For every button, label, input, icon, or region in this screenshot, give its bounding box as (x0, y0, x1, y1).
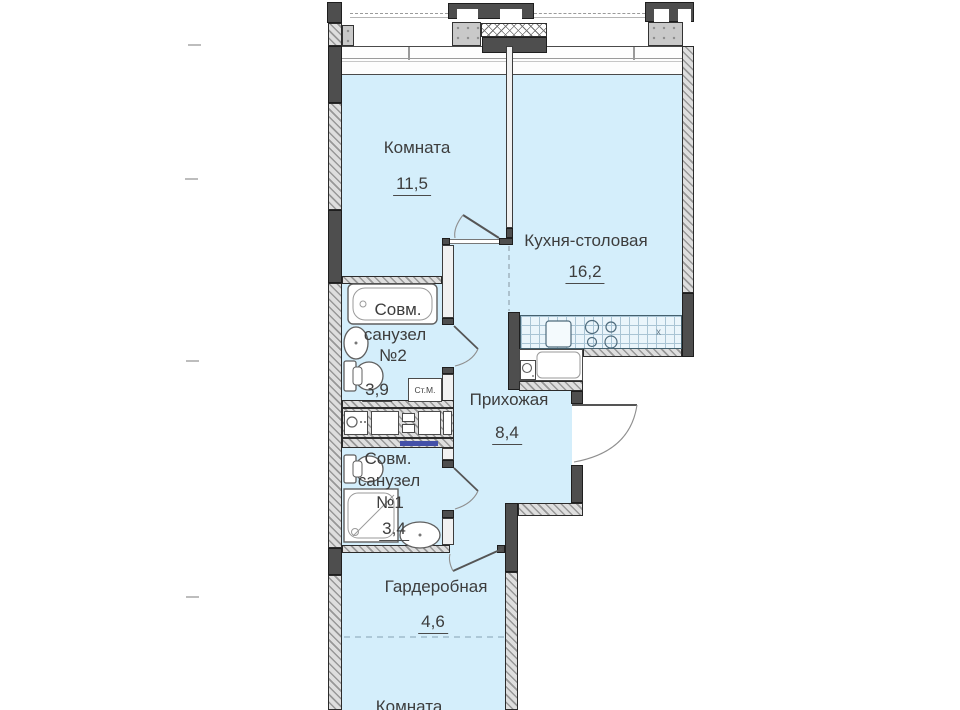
room-area: 16,2 (565, 263, 604, 280)
counter-mark: x (656, 327, 661, 338)
niche-counter (523, 352, 581, 378)
room-area: 3,4 (379, 520, 409, 537)
bathroom2-door (454, 326, 478, 366)
room-area: 4,6 (418, 613, 448, 630)
bathroom1-door (454, 468, 478, 509)
room-label: Гардеробная (385, 578, 488, 595)
room-label: Комната (376, 698, 443, 710)
room-label: Кухня-столовая (524, 232, 647, 249)
room-label: санузел (364, 326, 426, 343)
room-area: 11,5 (393, 175, 431, 192)
stove-burners (586, 321, 618, 349)
room-label: санузел (358, 472, 420, 489)
room-area: 3,9 (362, 381, 392, 398)
entrance-door (572, 405, 637, 462)
room-door (455, 215, 499, 238)
room-area: 8,4 (492, 424, 522, 441)
room-label: Комната (384, 139, 451, 156)
fixtures-overlay: x (0, 0, 960, 710)
room-label: Совм. (375, 301, 422, 318)
room-label: №1 (376, 494, 404, 511)
room-label: Совм. (365, 450, 412, 467)
room-label: Прихожая (470, 391, 549, 408)
utility-sink-detail (347, 417, 366, 427)
room-label: №2 (379, 347, 407, 364)
kitchen-sink (546, 321, 571, 347)
floor-plan: Ст.М. (0, 0, 960, 710)
wardrobe-door (449, 549, 502, 571)
